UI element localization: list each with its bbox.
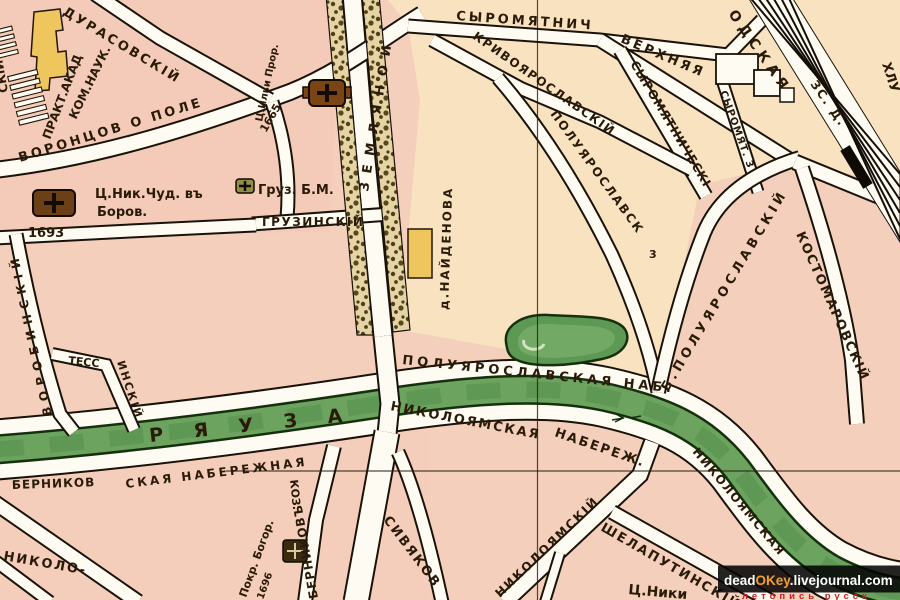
watermark-mid: OKey [756,573,792,588]
street-label-bernikovskaya-1: БЕРНИКОВ [12,475,96,492]
church-icon-1665 [303,80,351,106]
watermark-suffix: .livejournal [790,573,861,588]
historical-map-screenshot: ДУРАСОВСКІЙ ВОРОНЦОВ О ПОЛЕ ЗЕМЛЯНОЙ ГРУ… [0,0,900,600]
watermark-prefix: dead [724,573,756,588]
watermark-site: deadOKey.livejournal.com [724,573,893,588]
church-year-1693: 1693 [28,226,64,241]
naydenov-house [408,229,432,278]
church-icon-gruz [236,179,254,193]
watermark-tagline: летопись русск [742,591,871,600]
church-icon-1693 [33,190,75,216]
church-label-gruz-bm: Груз. Б.М. [258,183,334,198]
street-label-gruzinskiy: ГРУЗИНСКІЙ [262,214,364,229]
watermark-tld: .com [861,573,893,588]
church-label-nik-chud-1: Ц.Ник.Чуд. въ [95,187,203,202]
station-building-1 [716,54,758,84]
pond [506,315,627,365]
street-zemlyanoy-bridge [383,336,390,434]
church-label-nik-chud-2: Боров. [97,205,147,220]
historical-map-canvas: ДУРАСОВСКІЙ ВОРОНЦОВ О ПОЛЕ ЗЕМЛЯНОЙ ГРУ… [0,0,900,600]
street-label-m-poluyaroslavskiy-num: 3 [649,248,657,261]
